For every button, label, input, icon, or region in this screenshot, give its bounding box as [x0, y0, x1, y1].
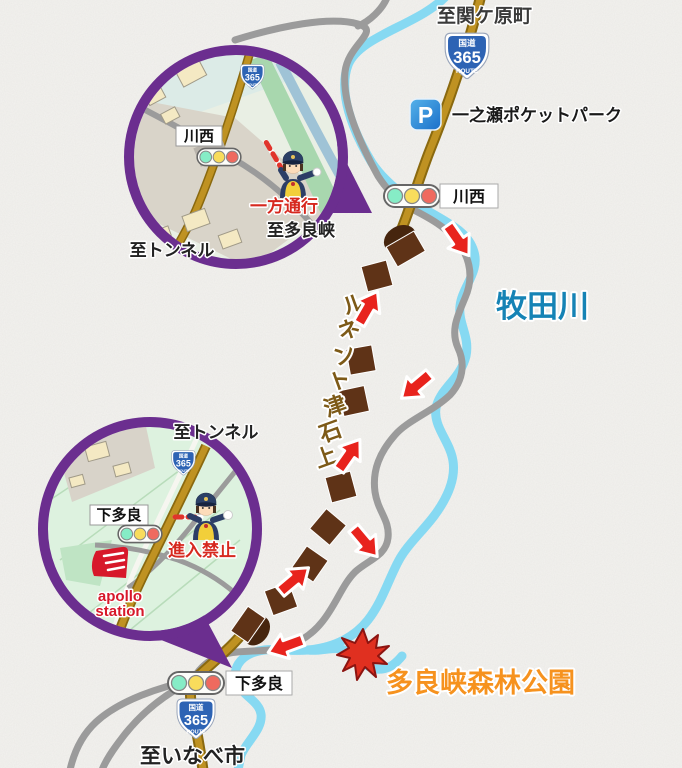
- gas-station-icon: [92, 547, 128, 578]
- pocket-park-label: 一之瀬ポケットパーク: [452, 105, 622, 125]
- inset-bottom-signal-label: 下多良: [96, 506, 141, 524]
- route-detour-map: 国道 365 ROUTE: [0, 0, 682, 768]
- parking-icon-letter: P: [418, 102, 433, 128]
- forest-park-label: 多良峡森林公園: [386, 667, 575, 698]
- inset-top-signal-label: 川西: [183, 128, 214, 145]
- dest-sekigahara-label: 至関ケ原町: [437, 5, 532, 27]
- inset-top-dest-tunnel-label: 至トンネル: [130, 241, 215, 260]
- dest-tarakyo-label: 至多良峡: [267, 220, 336, 240]
- map-canvas: 国道 365 ROUTE: [0, 0, 682, 768]
- one-way-warning-label: 一方通行: [250, 196, 318, 216]
- kawanishi-signal-label: 川西: [452, 188, 485, 206]
- no-entry-warning-label: 進入禁止: [168, 540, 236, 560]
- river-makita-label: 牧田川: [496, 289, 589, 324]
- inset-bottom-dest-tunnel-label: 至トンネル: [174, 423, 259, 442]
- dest-inabe-label: 至いなべ市: [140, 744, 245, 768]
- shimotara-signal-label: 下多良: [235, 674, 283, 693]
- gas-station-name-line2: station: [95, 603, 144, 620]
